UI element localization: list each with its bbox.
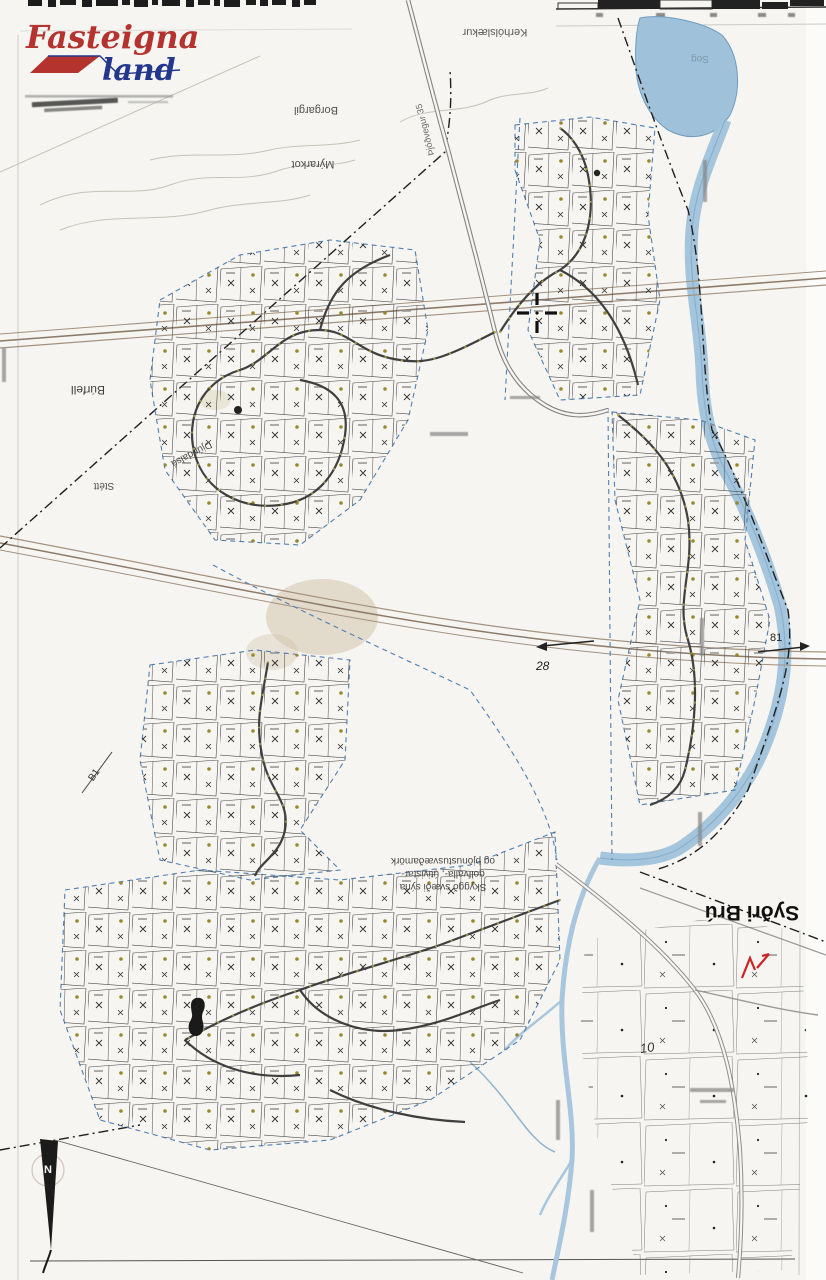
creek-line: [470, 1062, 555, 1152]
logo-word-top: Fasteigna: [25, 18, 199, 56]
marker-b2: 28: [535, 659, 550, 673]
cluster-bottom-right-sparse: [580, 920, 810, 1275]
cluster-center-left: [140, 650, 350, 880]
marker-b1: B1: [86, 767, 102, 784]
field-boundary-line: [55, 1140, 523, 1273]
label-sydri-bru: Syðri Brú: [705, 901, 800, 924]
label-stett: Stétt: [94, 480, 115, 491]
logo-word-bottom: land: [102, 53, 176, 88]
scanned-plot-map-page: 28 81 B1 10 Kerhólslækur Sog Borgargil M…: [0, 0, 826, 1280]
marker-plot10: 10: [639, 1039, 656, 1056]
annotation-line1: Skyggð svæði sýna: [399, 881, 486, 893]
annotation-note: Skyggð svæði sýna golfvalla-, útivistar-…: [390, 855, 495, 893]
label-burfell: Búrfell: [71, 383, 105, 397]
annotation-line3: og þjónustusvæðamörk: [390, 855, 495, 867]
logo-roof-icon: [30, 56, 100, 73]
marker-81: 81: [770, 632, 782, 644]
label-top-stream: Kerhólslækur: [462, 26, 527, 38]
label-road-35: Þjóðvegur 35: [414, 103, 437, 157]
cluster-upper-left: [150, 240, 428, 545]
label-borgargil: Borgargil: [294, 104, 338, 116]
lake: [636, 17, 738, 137]
annotation-line2: golfvalla-, útivistar-: [401, 868, 484, 879]
label-river-sog: Sog: [691, 53, 709, 64]
north-arrow-letter: N: [44, 1164, 52, 1176]
contour-lines: [0, 56, 548, 230]
map-canvas: 28 81 B1 10 Kerhólslækur Sog Borgargil M…: [0, 0, 826, 1280]
logo: Fasteigna land: [25, 18, 199, 113]
cluster-top-right: [515, 117, 660, 400]
label-myrarkot: Mýrarkot: [292, 158, 335, 170]
clipped-header-text: [28, 0, 316, 7]
logo-fine-print-smudge: [25, 95, 173, 113]
north-arrow: N: [32, 1139, 64, 1273]
